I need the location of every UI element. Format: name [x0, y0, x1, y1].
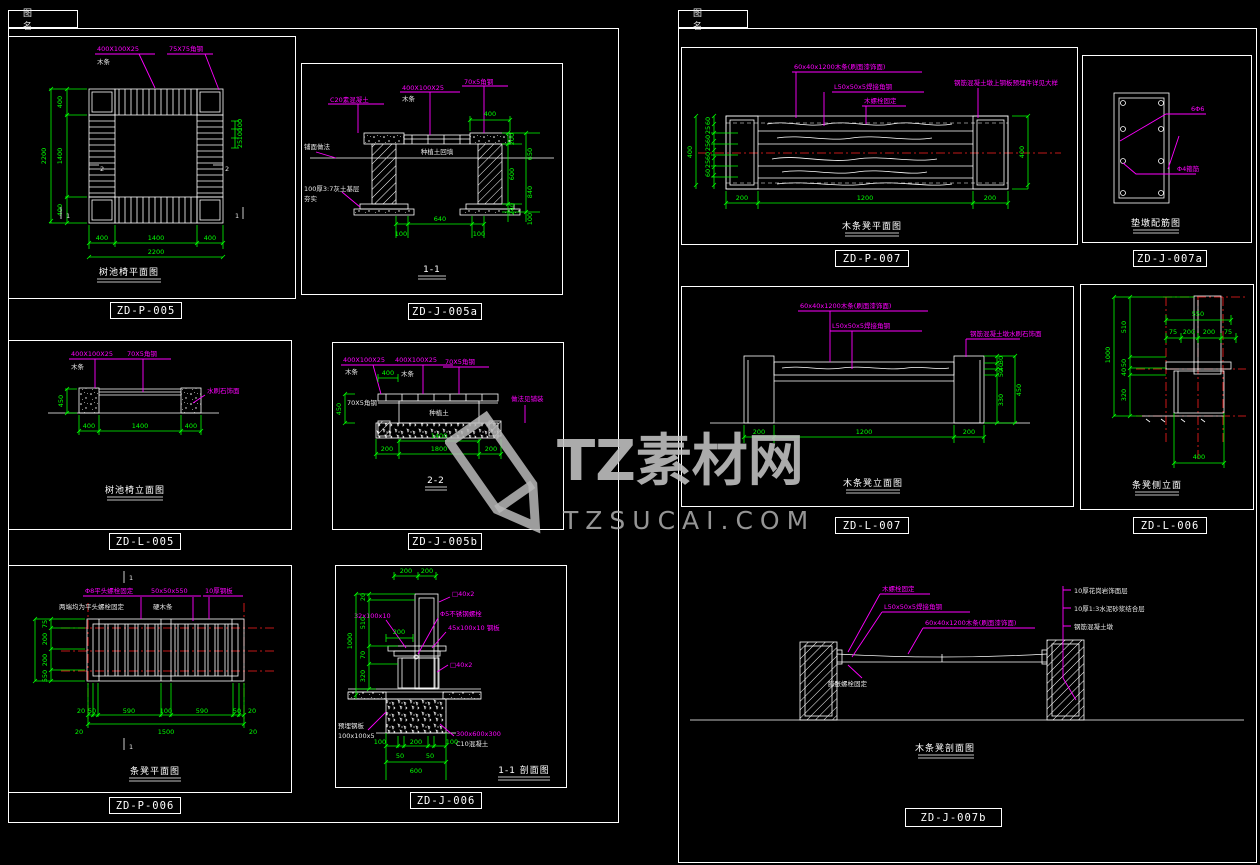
annotation-label: 水刷石饰面 — [207, 386, 240, 395]
seat-slab — [774, 362, 954, 381]
dim-label: 240 — [508, 203, 516, 215]
dim-label: 400 — [204, 234, 216, 242]
annotation-label: 木螺栓固定 — [864, 96, 897, 105]
end-block — [79, 388, 99, 413]
annotation-label: 400X100X25 — [97, 45, 139, 53]
drawing-title: 垫墩配筋图 — [1131, 217, 1181, 229]
dim-label: 50 — [426, 752, 434, 760]
dim-label: 25 — [236, 140, 244, 148]
dim-label: 50 — [997, 369, 1005, 377]
dim-label: 510 — [1120, 321, 1128, 333]
dim-label: 400 — [185, 422, 197, 430]
dim-label: 200 — [753, 428, 765, 436]
title-underline — [425, 487, 447, 490]
annotation-label: 木条 — [402, 94, 416, 103]
dim-label: 590 — [123, 707, 135, 715]
section-mark-label: 2 — [100, 165, 104, 173]
annotation-label: □40x2 — [450, 661, 472, 669]
dim-label: 1000 — [1104, 347, 1112, 364]
concrete-cap — [364, 133, 404, 144]
leader-lines — [798, 311, 1020, 369]
annotation-label: 钢筋混凝土墩 — [1074, 622, 1114, 631]
dim-label: 550 — [1192, 310, 1204, 318]
seat-plates — [388, 646, 446, 659]
annotation-label: 60x40x1200木条(刷面漆饰面) — [794, 62, 885, 71]
dim-label: 400 — [83, 422, 95, 430]
panel-wood-bench-plan: 60 25 60 25 60 25 60 400 400 200 1200 20… — [681, 47, 1078, 245]
pier-rebar-drawing: 6Φ6 Φ4箍筋 垫墩配筋图 — [1083, 56, 1251, 242]
annotation-label: 70X5角钢 — [445, 357, 475, 366]
annotation-label: 100x100x5 — [338, 732, 375, 740]
dim-label: 100 — [446, 738, 458, 746]
dim-label: 200 — [736, 194, 748, 202]
annotation-label: 400X100X25 — [343, 356, 385, 364]
annotation-label: 400X100X25 — [402, 84, 444, 92]
dim-lines-left — [65, 387, 77, 415]
title-underline — [846, 490, 900, 493]
annotation-label: 400X100X25 — [395, 356, 437, 364]
annotation-label: L50x50x5焊接角钢 — [834, 82, 892, 91]
dim-label: 550 — [41, 670, 49, 682]
dim-label: 25 — [704, 143, 712, 151]
dim-label: 100 — [236, 128, 244, 140]
annotation-label: 400X100X25 — [71, 350, 113, 358]
annotation-label: 木条 — [401, 369, 415, 378]
code-text: ZD-J-005a — [412, 306, 478, 318]
annotation-label: 钢筋混凝土墩水刷石饰面 — [970, 329, 1042, 338]
dim-label: 200 — [1183, 328, 1195, 336]
panel-tree-pool-section-2-2: 种植土 400X100X25 木条 400X100X25 木条 70X5角钢 7… — [332, 342, 564, 530]
code-text: ZD-L-006 — [1141, 520, 1200, 532]
pier-hatch — [478, 144, 502, 204]
code-label-zd-l-005: ZD-L-005 — [109, 533, 181, 550]
code-label-zd-p-006: ZD-P-006 — [109, 797, 181, 814]
dim-label: 60 — [704, 135, 712, 143]
annotation-label: Φ8平头螺栓固定 — [85, 586, 134, 595]
section-mark-label: 1 — [235, 212, 239, 220]
dim-label: 200 — [1203, 328, 1215, 336]
pier-hatch — [372, 144, 396, 204]
dim-label: 200 — [410, 738, 422, 746]
detail-outline — [1142, 296, 1231, 422]
panel-wood-bench-elevation: 60x40x1200木条(刷面漆饰面) L50x50x5焊接角钢 钢筋混凝土墩水… — [681, 286, 1074, 507]
annotation-label: 60x40x1200木条(刷面漆饰面) — [925, 618, 1016, 627]
dim-label: 100 — [395, 230, 407, 238]
dim-label: 400 — [1193, 453, 1205, 461]
dim-label: 1200 — [856, 428, 873, 436]
panel-tree-pool-section-1-1: 种植土回填 C20素混凝土 400X100X25 木条 70x5角钢 铺面做法 … — [301, 63, 563, 295]
code-label-zd-j-006: ZD-J-006 — [410, 792, 482, 809]
code-text: ZD-L-007 — [843, 520, 902, 532]
annotation-label: 70x5角钢 — [464, 77, 494, 86]
drawing-title: 木条凳剖面图 — [915, 742, 975, 754]
section-marks — [61, 165, 243, 219]
dim-label: 200 — [381, 445, 393, 453]
dim-label: 70 — [359, 651, 367, 659]
annotation-label: 60x40x1200木条(刷面漆饰面) — [800, 301, 891, 310]
annotation-label: C20素混凝土 — [330, 95, 369, 104]
annotation-label: 钢筋混凝土墩上钢板预埋件详见大样 — [954, 78, 1059, 87]
title-underline — [107, 497, 163, 500]
bench-outline — [726, 116, 1008, 189]
code-text: ZD-J-007a — [1137, 253, 1203, 265]
seat-band — [378, 394, 498, 403]
annotation-label: 夯实 — [304, 194, 318, 203]
planter-corner-posts — [89, 89, 223, 223]
title-underline — [918, 755, 974, 758]
dim-lines-left — [49, 87, 87, 225]
sheet-tab-right[interactable]: 图 名 — [678, 10, 748, 28]
dim-label: 50 — [396, 752, 404, 760]
dim-label: 75 — [1169, 328, 1177, 336]
annotation-label: 硬木条 — [153, 602, 173, 611]
wood-bench-plan-drawing: 60 25 60 25 60 25 60 400 400 200 1200 20… — [682, 48, 1077, 244]
code-label-zd-p-005: ZD-P-005 — [110, 302, 182, 319]
dim-label: 1400 — [431, 432, 448, 440]
annotation-label: 两端均为平头螺栓固定 — [59, 602, 125, 611]
dim-label: 200 — [393, 628, 405, 636]
annotation-label: 木螺栓固定 — [882, 584, 915, 593]
dim-label: 400 — [382, 369, 394, 377]
pier-outline — [1114, 93, 1169, 203]
bench-section-drawing: □40x2 32x100x10 Φ5不锈钢螺栓 45x100x10 钢板 □40… — [336, 566, 566, 787]
dim-label: 200 — [421, 567, 433, 575]
title-underline — [1133, 230, 1179, 233]
footings — [354, 204, 520, 215]
dim-label: 400 — [56, 204, 64, 216]
code-label-zd-p-007: ZD-P-007 — [835, 250, 909, 267]
dim-label: 450 — [57, 395, 65, 407]
drawing-title: 树池椅立面图 — [105, 484, 165, 496]
dim-label: 200 — [41, 654, 49, 666]
annotation-label: C10混凝土 — [456, 739, 489, 748]
annotation-label: 木条 — [71, 362, 85, 371]
dim-label: 320 — [1120, 389, 1128, 401]
section-mark-label: 1 — [66, 212, 70, 220]
code-text: ZD-P-007 — [843, 253, 902, 265]
dim-label: 200 — [41, 633, 49, 645]
dim-lines-left — [343, 392, 355, 425]
annotation-label: 70X5角钢 — [347, 398, 377, 407]
dim-label: 25 — [704, 160, 712, 168]
dim-label: 2200 — [148, 248, 165, 256]
dim-label: 640 — [434, 215, 446, 223]
title-underline — [845, 233, 899, 236]
dim-label: 590 — [196, 707, 208, 715]
bench-side-detail-drawing: 550 75 200 200 75 510 50 40 320 1000 400… — [1081, 285, 1253, 509]
dim-label: 320 — [359, 670, 367, 682]
code-text: ZD-P-006 — [116, 800, 175, 812]
annotation-label: 45x100x10 钢板 — [448, 623, 500, 632]
dim-label: 1400 — [148, 234, 165, 242]
dim-label: 200 — [963, 428, 975, 436]
annotation-label: Φ5不锈钢螺栓 — [440, 609, 482, 618]
code-label-zd-j-007b: ZD-J-007b — [905, 808, 1002, 827]
dim-label: 40 — [1120, 368, 1128, 376]
leader-lines — [848, 586, 1076, 700]
drawing-title: 木条凳立面图 — [843, 477, 903, 489]
code-label-zd-j-005b: ZD-J-005b — [408, 533, 482, 550]
dim-label: 60 — [704, 169, 712, 177]
title-underline — [129, 778, 181, 781]
code-label-zd-l-007: ZD-L-007 — [835, 517, 909, 534]
dim-label: 200 — [485, 445, 497, 453]
dim-label: 20 — [75, 728, 83, 736]
annotation-label: 木条 — [345, 367, 359, 376]
drawing-title: 条凳侧立面 — [1132, 479, 1182, 491]
wood-bench-elevation-drawing: 60x40x1200木条(刷面漆饰面) L50x50x5焊接角钢 钢筋混凝土墩水… — [682, 287, 1073, 506]
dim-label: 400 — [686, 146, 694, 158]
annotation-label: 70X5角钢 — [127, 349, 157, 358]
drawing-title: 1-1 — [423, 265, 441, 275]
end-hatch-block — [378, 421, 390, 436]
dim-label: 50 — [233, 707, 241, 715]
dim-label: 25 — [704, 126, 712, 134]
dim-label: 20 — [249, 728, 257, 736]
dim-label: 100 — [160, 707, 172, 715]
concrete-footing — [386, 699, 446, 733]
code-label-zd-j-007a: ZD-J-007a — [1133, 250, 1207, 267]
section-mark-label: 1 — [129, 574, 133, 582]
dim-label: 1500 — [158, 728, 175, 736]
annotation-label: 预埋钢板 — [338, 721, 365, 730]
rebar-dots — [1121, 101, 1164, 196]
annotation-label: L50x50x5焊接角钢 — [884, 602, 942, 611]
annotation-label: L50x50x5焊接角钢 — [832, 321, 890, 330]
dim-label: 1200 — [857, 194, 874, 202]
annotation-label: 10厚1:3水泥砂浆结合层 — [1074, 604, 1145, 613]
sheet-tab-left[interactable]: 图 名 — [8, 10, 78, 28]
panel-tree-pool-bench-plan: 400 1400 400 2200 400 1400 400 2200 100 … — [8, 36, 296, 299]
dim-label: 75 — [41, 620, 49, 628]
section-mark-label: 2 — [225, 165, 229, 173]
dim-label: 20 — [359, 593, 367, 601]
lower-frame — [398, 658, 439, 688]
dim-lines-bottom — [86, 683, 246, 728]
dim-label: 60 — [704, 117, 712, 125]
annotation-label: 10厚花岗岩饰面层 — [1074, 586, 1128, 595]
dim-label: 2200 — [40, 148, 48, 165]
bench-post — [415, 594, 438, 689]
annotation-label: 木条 — [97, 57, 111, 66]
title-underline — [1135, 492, 1179, 495]
annotation-label: 10厚钢板 — [205, 586, 233, 595]
dim-label: 100 — [526, 213, 534, 225]
seat-slab — [837, 650, 1047, 664]
dim-label: 510 — [359, 617, 367, 629]
dim-label: 1400 — [56, 148, 64, 165]
bench-plan-drawing: 1 1 Φ8平头螺栓固定 两端均为平头螺栓固定 50x50x550 硬木条 10… — [9, 566, 291, 792]
dim-label: 200 — [400, 567, 412, 575]
dim-label: 200 — [984, 194, 996, 202]
dim-label: 840 — [526, 186, 534, 198]
panel-bench-plan: 1 1 Φ8平头螺栓固定 两端均为平头螺栓固定 50x50x550 硬木条 10… — [8, 565, 292, 793]
dim-label: 50 — [88, 707, 96, 715]
panel-bench-section-detail: □40x2 32x100x10 Φ5不锈钢螺栓 45x100x10 钢板 □40… — [335, 565, 567, 788]
bench-posts — [744, 356, 984, 423]
drawing-title: 木条凳平面图 — [842, 220, 902, 232]
dim-label: 330 — [997, 394, 1005, 406]
seat-band — [99, 389, 181, 395]
dim-label: 100 — [473, 230, 485, 238]
dim-label: 600 — [410, 767, 422, 775]
dim-label: 400 — [96, 234, 108, 242]
panel-tree-pool-elevation: 400X100X25 木条 70X5角钢 水刷石饰面 450 400 1400 … — [8, 340, 292, 530]
title-underline — [418, 276, 446, 279]
annotation-label: 300x600x300 — [456, 730, 501, 738]
annotation-label: 6Φ6 — [1191, 105, 1204, 113]
drawing-title: 1-1 剖面图 — [498, 764, 550, 776]
annotation-label: 种植土回填 — [421, 147, 454, 156]
concrete-cap — [470, 133, 510, 144]
drawing-title: 树池椅平面图 — [99, 266, 159, 278]
code-text: ZD-J-007b — [921, 812, 987, 824]
annotation-label: 铺面做法 — [304, 142, 331, 151]
annotation-label: 种植土 — [429, 408, 449, 417]
dim-label: 60 — [704, 152, 712, 160]
code-text: ZD-J-005b — [412, 536, 478, 548]
dim-label: 20 — [248, 707, 256, 715]
dim-label: 600 — [508, 168, 516, 180]
drawing-title: 条凳平面图 — [130, 765, 180, 777]
annotation-label: 75X75角钢 — [169, 44, 203, 53]
end-block — [181, 388, 201, 413]
dim-label: 1000 — [346, 633, 354, 650]
title-underline — [97, 279, 161, 282]
dim-label: 75 — [1224, 328, 1232, 336]
dim-lines-top — [468, 116, 512, 131]
title-underline — [498, 777, 550, 780]
leader-lines — [95, 54, 219, 90]
section-mark-label: 1 — [129, 743, 133, 751]
code-text: ZD-P-005 — [117, 305, 176, 317]
dim-label: 400 — [484, 110, 496, 118]
dim-label: 20 — [77, 707, 85, 715]
dim-label: 450 — [335, 403, 343, 415]
annotation-label: 100厚3:7灰土基层 — [304, 184, 360, 193]
tree-pool-elevation-drawing: 400X100X25 木条 70X5角钢 水刷石饰面 450 400 1400 … — [9, 341, 291, 529]
dim-label: 200 — [508, 133, 516, 145]
end-hatch-block — [489, 421, 501, 436]
code-label-zd-j-005a: ZD-J-005a — [408, 303, 482, 320]
drawing-title: 2-2 — [427, 476, 445, 486]
dim-label: 400 — [56, 96, 64, 108]
annotation-label: □40x2 — [452, 590, 474, 598]
tree-pool-section-drawing: 种植土回填 C20素混凝土 400X100X25 木条 70x5角钢 铺面做法 … — [302, 64, 562, 294]
dim-label: 1800 — [431, 445, 448, 453]
tree-pool-section-2-2-drawing: 种植土 400X100X25 木条 400X100X25 木条 70X5角钢 7… — [333, 343, 563, 529]
code-label-zd-l-006: ZD-L-006 — [1133, 517, 1207, 534]
seat-planks — [404, 135, 470, 144]
code-text: ZD-L-005 — [116, 536, 175, 548]
annotation-label: 50x50x550 — [151, 587, 188, 595]
dim-label: 450 — [1015, 384, 1023, 396]
annotation-label: Φ4箍筋 — [1177, 164, 1200, 173]
dim-label: 50 — [1120, 359, 1128, 367]
annotation-label: 做法见铺装 — [511, 394, 544, 403]
dim-label: 650 — [526, 148, 534, 160]
panel-pier-rebar-detail: 6Φ6 Φ4箍筋 垫墩配筋图 — [1082, 55, 1252, 243]
planter-slat-bands — [89, 89, 223, 223]
code-text: ZD-J-006 — [417, 795, 476, 807]
dim-label: 100 — [374, 738, 386, 746]
tree-pool-bench-plan-drawing: 400 1400 400 2200 400 1400 400 2200 100 … — [9, 37, 295, 298]
dim-label: 1400 — [132, 422, 149, 430]
annotation-label: 膨胀螺栓固定 — [828, 679, 868, 688]
panel-bench-side-detail: 550 75 200 200 75 510 50 40 320 1000 400… — [1080, 284, 1254, 510]
dim-label: 400 — [1018, 146, 1026, 158]
